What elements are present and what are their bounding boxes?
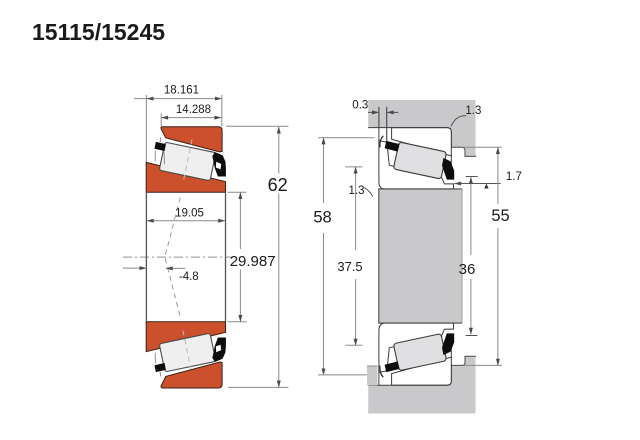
svg-text:0.3: 0.3 — [352, 100, 368, 112]
svg-text:-4.8: -4.8 — [179, 271, 199, 283]
svg-text:37.5: 37.5 — [337, 259, 362, 274]
svg-text:36: 36 — [459, 261, 476, 278]
svg-text:14.288: 14.288 — [176, 104, 211, 116]
svg-text:62: 62 — [268, 175, 288, 195]
svg-text:58: 58 — [313, 209, 331, 227]
svg-text:1.7: 1.7 — [506, 171, 522, 183]
svg-text:1.3: 1.3 — [349, 185, 365, 197]
svg-text:55: 55 — [491, 207, 509, 225]
svg-text:19.05: 19.05 — [175, 208, 204, 220]
svg-text:1.3: 1.3 — [465, 105, 481, 117]
svg-text:29.987: 29.987 — [230, 253, 276, 270]
svg-text:15115/15245: 15115/15245 — [32, 19, 165, 45]
svg-text:18.161: 18.161 — [164, 85, 199, 97]
